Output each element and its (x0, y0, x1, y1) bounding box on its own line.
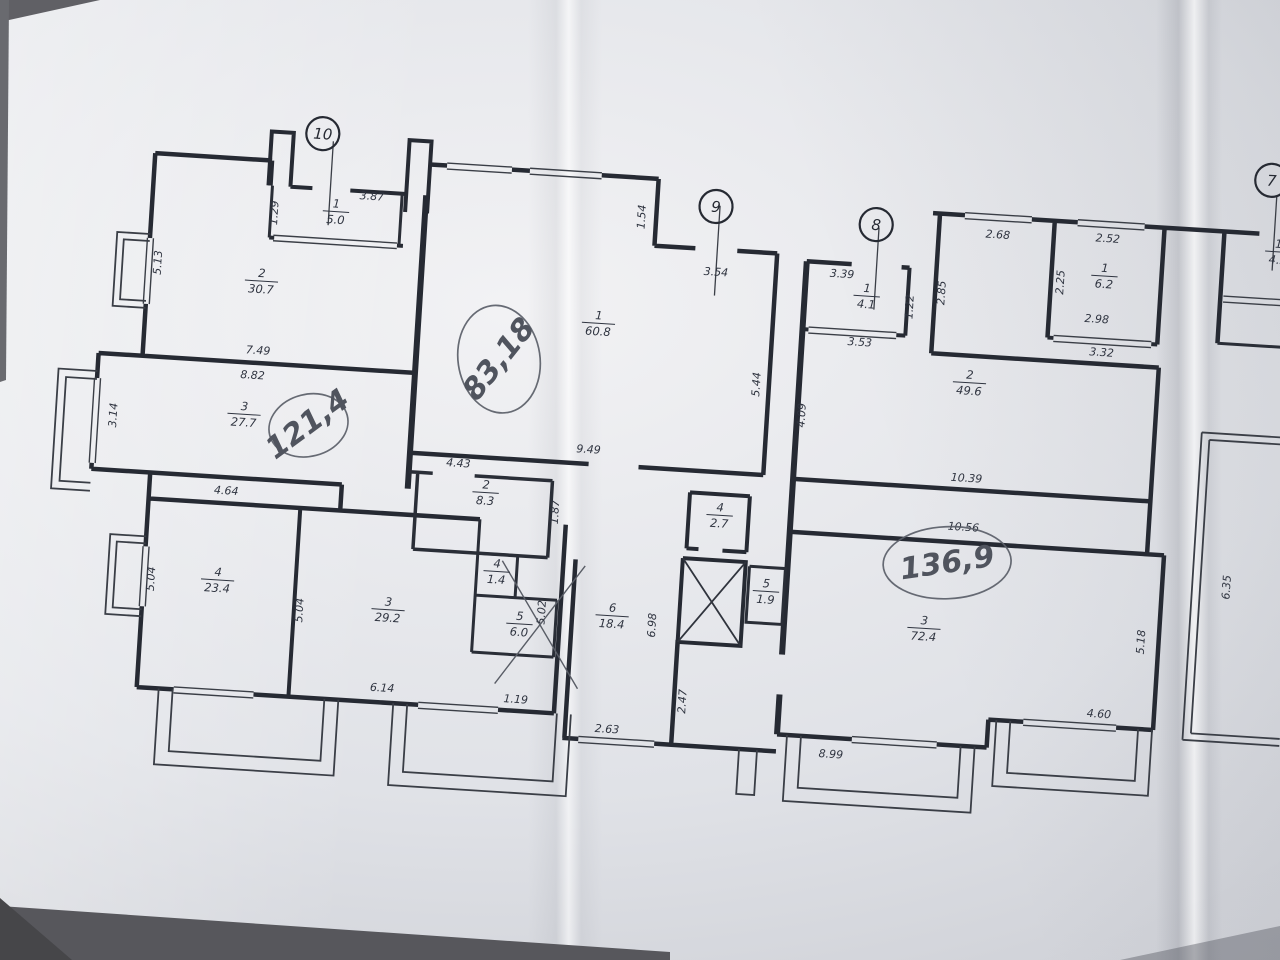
dimension-label: 3.87 (359, 189, 384, 204)
room-number: 1 (863, 281, 871, 295)
dimension-label: 5.13 (151, 250, 166, 275)
dimension-label: 6.35 (1219, 575, 1234, 600)
room-area: 18.4 (598, 616, 624, 632)
dimension-label: 1.54 (634, 204, 649, 229)
dimension-label: 8.82 (240, 368, 265, 383)
room-area: 60.8 (585, 324, 611, 340)
room-area: 6.2 (1094, 276, 1113, 291)
room-area: 6.0 (509, 624, 528, 639)
dimension-label: 6.98 (645, 613, 660, 638)
dimension-label: 2.68 (985, 227, 1010, 242)
dimension-label: 5.18 (1134, 629, 1149, 654)
dimension-label: 1.19 (503, 692, 528, 707)
secondary-walls (237, 131, 1168, 749)
dimension-label: 2.47 (675, 689, 690, 714)
dimension-label: 2.25 (1053, 270, 1068, 295)
dimension-label: 3.53 (847, 335, 872, 350)
room-number: 4 (716, 500, 724, 514)
dimension-label: 3.39 (829, 267, 854, 282)
room-number: 1 (1101, 261, 1109, 275)
dimension-label: 2.85 (934, 280, 949, 305)
room-area: 23.4 (204, 580, 230, 596)
dimension-label: 3.54 (703, 265, 728, 280)
handwritten-area-total: 136,9 (898, 539, 997, 587)
floor-plan-photo: 3.871.295.137.498.823.144.645.045.046.14… (0, 0, 1280, 960)
dimension-label: 8.99 (818, 747, 843, 762)
plan-root: 3.871.295.137.498.823.144.645.045.046.14… (34, 89, 1280, 841)
room-number: 6 (609, 601, 617, 615)
apartment-number: 8 (871, 216, 882, 235)
dimension-label: 1.29 (267, 200, 282, 225)
room-number: 4 (493, 556, 501, 570)
room-number: 2 (482, 477, 490, 491)
apartment-number: 7 (1266, 172, 1277, 191)
room-area: 8.3 (476, 493, 495, 508)
dimension-label: 3.32 (1089, 345, 1114, 360)
room-number: 1 (595, 308, 603, 322)
apartment-number: 10 (313, 125, 333, 144)
dimension-label: 6.14 (370, 681, 395, 696)
room-number: 2 (966, 368, 974, 382)
dimension-label: 5.04 (292, 597, 307, 622)
dimension-label: 5.02 (534, 600, 549, 625)
room-area: 4.5 (1268, 252, 1280, 267)
dimension-label: 4.09 (794, 403, 809, 428)
room-area: 49.6 (956, 383, 982, 399)
dimension-label: 5.44 (749, 372, 764, 397)
room-number: 1 (1275, 237, 1280, 251)
dimension-label: 4.43 (446, 456, 471, 471)
dimension-label: 9.49 (576, 442, 601, 457)
dimension-label: 1.22 (902, 294, 917, 319)
label-layer: 3.871.295.137.498.823.144.645.045.046.14… (88, 92, 1280, 788)
dimension-label: 2.63 (594, 722, 619, 737)
dimension-label: 1.87 (548, 499, 563, 524)
elevator-shaft-cross (678, 558, 746, 646)
dimension-label: 5.04 (144, 566, 159, 591)
apartment-number: 9 (711, 198, 722, 217)
room-number: 3 (920, 613, 928, 627)
room-area: 1.4 (487, 572, 506, 587)
dimension-label: 2.98 (1084, 312, 1109, 327)
room-number: 2 (258, 266, 266, 280)
room-area: 1.9 (756, 592, 775, 607)
room-number: 3 (240, 399, 248, 413)
dimension-label: 7.49 (245, 343, 270, 358)
dimension-label: 2.52 (1095, 231, 1120, 246)
room-area: 4.1 (857, 297, 876, 312)
dimension-label: 4.64 (214, 484, 239, 499)
entrance-door-ticks (325, 137, 1277, 334)
room-number: 5 (516, 609, 524, 623)
room-area: 29.2 (374, 610, 400, 626)
room-number: 5 (762, 576, 770, 590)
room-area: 30.7 (248, 281, 275, 297)
handwritten-area-total: 83,18 (456, 311, 543, 407)
room-number: 3 (384, 594, 392, 608)
room-area: 72.4 (910, 629, 936, 645)
dimension-label: 3.14 (106, 402, 121, 427)
room-number: 4 (214, 565, 222, 579)
dimension-label: 4.60 (1086, 707, 1111, 722)
room-area: 2.7 (710, 516, 730, 531)
room-number: 1 (332, 196, 340, 210)
dimension-label: 10.39 (950, 471, 982, 486)
floor-plan-drawing: 3.871.295.137.498.823.144.645.045.046.14… (0, 0, 1280, 960)
room-area: 27.7 (230, 414, 257, 430)
room-area: 5.0 (326, 212, 345, 227)
